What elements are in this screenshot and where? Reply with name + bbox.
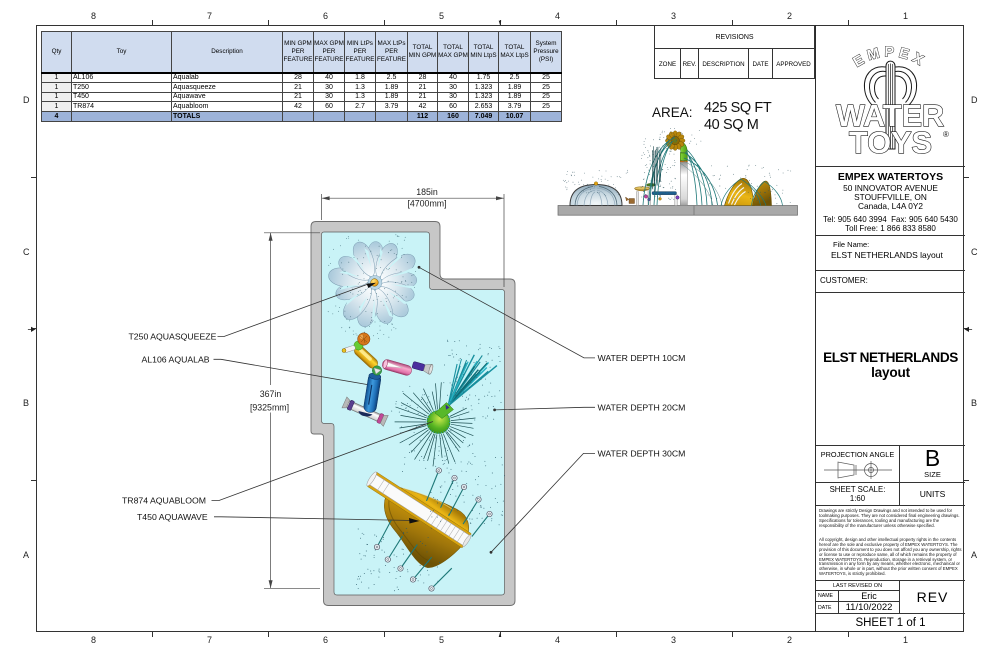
svg-text:AREA:: AREA: <box>652 105 693 120</box>
svg-text:T250 AQUASQUEEZE: T250 AQUASQUEEZE <box>129 332 217 342</box>
svg-text:[9325mm]: [9325mm] <box>250 403 289 413</box>
svg-text:425 SQ FT: 425 SQ FT <box>704 100 772 116</box>
svg-text:TR874 AQUABLOOM: TR874 AQUABLOOM <box>122 496 206 506</box>
svg-text:T450 AQUAWAVE: T450 AQUAWAVE <box>137 512 208 522</box>
svg-text:WATER DEPTH 20CM: WATER DEPTH 20CM <box>598 403 686 413</box>
svg-text:AL106 AQUALAB: AL106 AQUALAB <box>142 355 210 365</box>
svg-text:367in: 367in <box>260 389 282 399</box>
svg-text:WATER DEPTH 30CM: WATER DEPTH 30CM <box>598 449 686 459</box>
svg-text:185in: 185in <box>416 187 438 197</box>
svg-text:40 SQ M: 40 SQ M <box>704 117 758 133</box>
svg-text:[4700mm]: [4700mm] <box>407 199 446 209</box>
svg-text:WATER DEPTH 10CM: WATER DEPTH 10CM <box>598 353 686 363</box>
